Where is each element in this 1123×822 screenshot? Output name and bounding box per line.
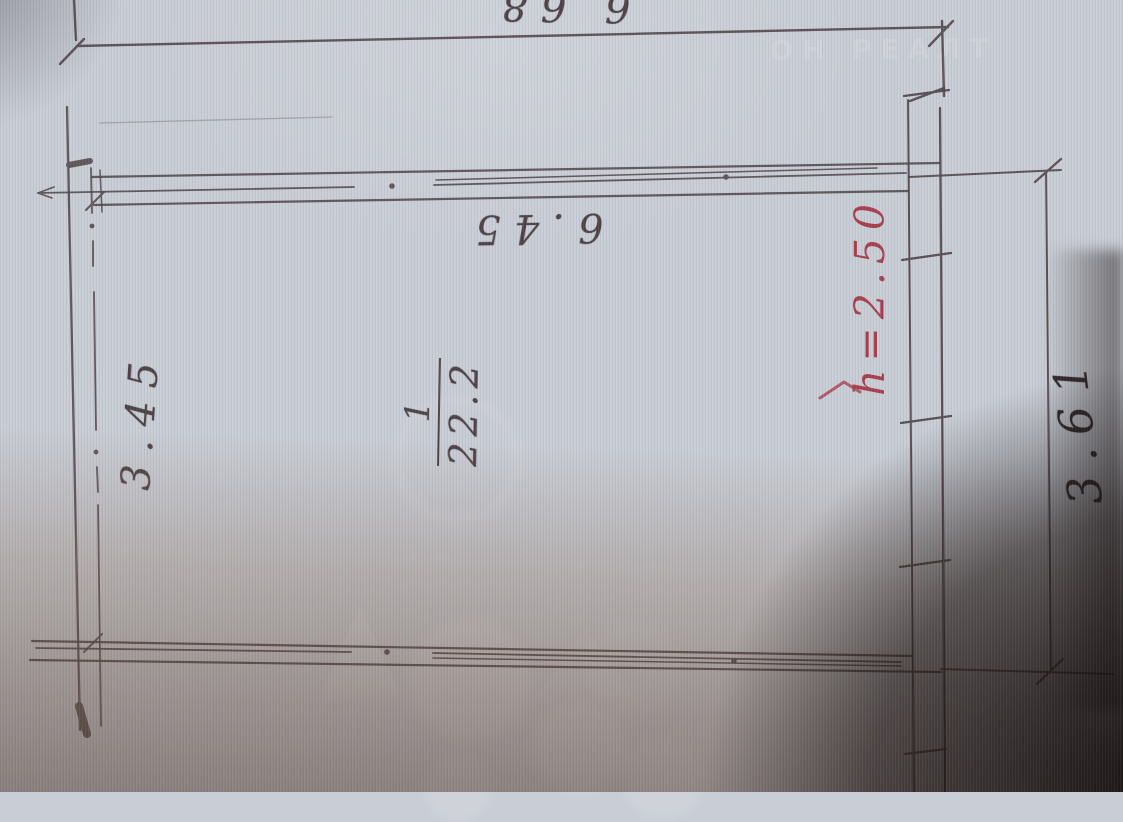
room-number-label: 1 — [399, 400, 435, 422]
fraction-bar — [437, 358, 441, 466]
floor-plan-photo: { "photo": { "watermark_text": "ОН РЕАЛТ… — [0, 0, 1123, 792]
dim-top-outer-label: 6.68 — [470, 0, 651, 31]
left-wall — [67, 107, 104, 734]
dim-top-inner-label: 6.45 — [443, 199, 624, 252]
room-label: 1 22.2 — [386, 346, 498, 478]
top-wall — [38, 117, 940, 205]
right-wall — [900, 88, 951, 792]
bottom-wall — [30, 641, 941, 672]
room-area-label: 22.2 — [442, 358, 486, 467]
ceiling-height-label: h=2.50 — [846, 176, 900, 416]
